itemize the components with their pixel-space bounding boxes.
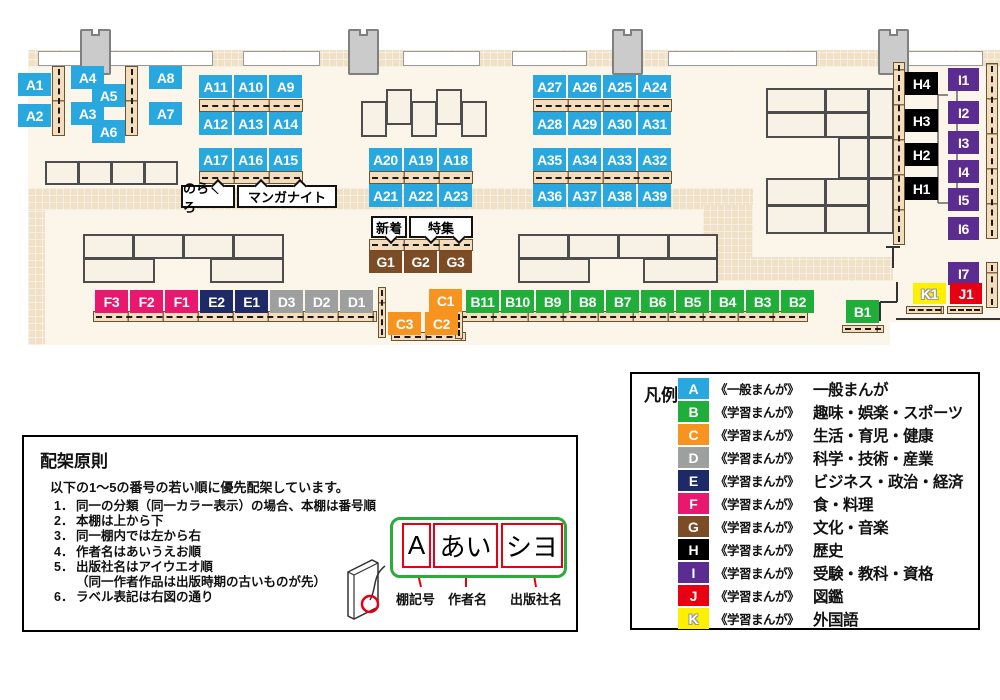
shelf-label-A7: A7	[149, 102, 182, 125]
shelf-label-F3: F3	[95, 290, 128, 313]
table-block	[766, 88, 826, 113]
shelf-strip	[125, 66, 138, 136]
legend-category: ビジネス・政治・経済	[813, 470, 963, 492]
legend-series: 《学習まんが》	[715, 448, 813, 467]
shelf-strip	[378, 287, 386, 338]
legend-series: 《一般まんが》	[715, 379, 813, 398]
table-block	[643, 258, 718, 283]
table-block	[825, 112, 869, 138]
shelf-strip	[52, 66, 65, 136]
table-block	[210, 258, 284, 283]
legend-item-C: C《学習まんが》生活・育児・健康	[678, 423, 974, 446]
legend-series: 《学習まんが》	[715, 609, 813, 628]
shelf-label-A2: A2	[18, 104, 51, 127]
shelf-strip	[842, 325, 884, 333]
shelf-label-C2: C2	[425, 312, 458, 335]
legend-item-I: I《学習まんが》受験・教科・資格	[678, 561, 974, 584]
right-walkway	[750, 257, 893, 281]
rule-item-4: 4．作者名はあいうえお順	[54, 545, 376, 560]
rules-intro: 以下の1～5の番号の若い順に優先配架しています。	[50, 477, 349, 496]
shelf-label-F1: F1	[165, 290, 198, 313]
shelf-label-B1: B1	[846, 300, 879, 323]
legend-item-D: D《学習まんが》科学・技術・産業	[678, 446, 974, 469]
shelf-label-B9: B9	[536, 290, 569, 313]
shelf-label-A24: A24	[638, 75, 671, 98]
wall-segment	[512, 51, 587, 66]
shelf-label-A17: A17	[199, 148, 232, 171]
legend-item-A: A《一般まんが》一般まんが	[678, 377, 974, 400]
bubble-new-arrivals: 新着	[371, 216, 407, 238]
shelf-label-A28: A28	[533, 112, 566, 135]
floor-cut	[890, 322, 1000, 345]
legend-box: 凡例 A《一般まんが》一般まんがB《学習まんが》趣味・娯楽・スポーツC《学習まん…	[630, 372, 980, 630]
rules-title: 配架原則	[40, 447, 108, 472]
shelf-label-A26: A26	[568, 75, 601, 98]
shelf-label-H1: H1	[905, 177, 938, 200]
shelf-label-A9: A9	[269, 75, 302, 98]
table-block	[133, 234, 184, 259]
label-publisher-cell: シヨ	[501, 523, 563, 568]
table-block	[144, 161, 178, 185]
shelf-label-A1: A1	[18, 73, 51, 96]
table-block	[766, 112, 826, 138]
table-block	[568, 234, 619, 259]
shelf-label-A12: A12	[199, 112, 232, 135]
table-block	[436, 89, 462, 125]
legend-series: 《学習まんが》	[715, 471, 813, 490]
legend-title: 凡例	[644, 381, 678, 406]
legend-series: 《学習まんが》	[715, 494, 813, 513]
shelf-label-K1: K1	[913, 283, 946, 304]
shelf-strip	[369, 171, 473, 184]
bubble-feature: 特集	[409, 216, 473, 238]
shelf-label-A31: A31	[638, 112, 671, 135]
shelf-label-C1: C1	[429, 289, 462, 312]
shelf-label-A19: A19	[404, 148, 437, 171]
legend-item-E: E《学習まんが》ビジネス・政治・経済	[678, 469, 974, 492]
legend-series: 《学習まんが》	[715, 517, 813, 536]
table-block	[668, 234, 718, 259]
shelf-label-D2: D2	[305, 290, 338, 313]
floor-map-page: A1A2A4A5A3A6A8A7A11A10A9A12A13A14A17A16A…	[0, 0, 1000, 700]
wall-segment	[668, 51, 817, 66]
table-block	[233, 234, 284, 259]
legend-chip-J: J	[678, 585, 709, 606]
table-block	[518, 234, 569, 259]
rule-item-6: 6．ラベル表記は右図の通り	[54, 590, 376, 605]
shelf-strip	[533, 99, 672, 112]
table-block	[183, 234, 234, 259]
rules-list: 1．同一の分類（同一カラー表示）の場合、本棚は番号順2．本棚は上から下3．同一棚…	[54, 499, 376, 605]
shelf-label-A32: A32	[638, 148, 671, 171]
table-block	[766, 205, 826, 234]
left-walkway	[28, 188, 45, 345]
shelf-strip	[986, 63, 998, 239]
shelf-label-A33: A33	[603, 148, 636, 171]
legend-chip-F: F	[678, 493, 709, 514]
shelf-label-C3: C3	[388, 312, 421, 335]
shelf-label-B6: B6	[641, 290, 674, 313]
shelf-label-B7: B7	[606, 290, 639, 313]
legend-category: 図鑑	[813, 585, 843, 607]
table-block	[825, 88, 869, 113]
shelf-strip	[947, 306, 983, 314]
legend-item-F: F《学習まんが》食・料理	[678, 492, 974, 515]
shelf-label-I1: I1	[948, 68, 979, 91]
shelf-label-A15: A15	[269, 148, 302, 171]
shelf-strip	[893, 62, 905, 245]
shelf-label-A36: A36	[533, 184, 566, 207]
shelf-label-J1: J1	[950, 283, 982, 304]
shelf-label-B8: B8	[571, 290, 604, 313]
legend-chip-D: D	[678, 447, 709, 468]
wall-segment	[243, 51, 320, 66]
shelf-label-B10: B10	[501, 290, 534, 313]
rule-item-3: 3．同一棚内では左から右	[54, 529, 376, 544]
shelf-label-A34: A34	[568, 148, 601, 171]
legend-item-K: K《学習まんが》外国語	[678, 607, 974, 630]
shelf-label-A8: A8	[149, 66, 182, 89]
legend-chip-I: I	[678, 562, 709, 583]
legend-category: 受験・教科・資格	[813, 562, 933, 584]
shelf-strip	[199, 99, 303, 112]
shelf-label-I7: I7	[948, 262, 979, 285]
table-block	[111, 161, 145, 185]
shelf-strip	[533, 171, 672, 184]
table-block	[838, 137, 869, 179]
shelf-label-B3: B3	[746, 290, 779, 313]
pillar-notch	[91, 29, 100, 36]
shelf-label-I4: I4	[948, 160, 979, 183]
legend-item-G: G《学習まんが》文化・音楽	[678, 515, 974, 538]
shelf-label-G2: G2	[404, 250, 437, 273]
legend-category: 食・料理	[813, 493, 873, 515]
table-block	[411, 101, 437, 137]
shelf-label-A39: A39	[638, 184, 671, 207]
legend-chip-A: A	[678, 378, 709, 399]
legend-chip-K: K	[678, 608, 709, 629]
table-block	[868, 137, 894, 179]
table-block	[361, 101, 387, 137]
table-block	[78, 161, 112, 185]
shelf-label-G1: G1	[369, 250, 402, 273]
table-block	[83, 258, 155, 283]
shelf-label-D1: D1	[340, 290, 373, 313]
shelf-label-A11: A11	[199, 75, 232, 98]
legend-chip-E: E	[678, 470, 709, 491]
wall-segment	[38, 51, 213, 66]
table-block	[868, 88, 894, 138]
table-block	[618, 234, 669, 259]
shelf-label-A21: A21	[369, 184, 402, 207]
shelf-label-I5: I5	[948, 188, 979, 211]
shelf-label-A16: A16	[234, 148, 267, 171]
pillar	[612, 29, 643, 75]
table-block	[825, 205, 869, 234]
shelf-strip	[906, 306, 944, 314]
legend-chip-C: C	[678, 424, 709, 445]
shelf-label-A38: A38	[603, 184, 636, 207]
shelf-label-D3: D3	[270, 290, 303, 313]
legend-series: 《学習まんが》	[715, 402, 813, 421]
label-author-cell: あい	[433, 523, 498, 568]
legend-rows: A《一般まんが》一般まんがB《学習まんが》趣味・娯楽・スポーツC《学習まんが》生…	[678, 377, 974, 630]
shelf-strip	[986, 262, 998, 308]
shelf-label-H4: H4	[905, 72, 938, 95]
legend-category: 趣味・娯楽・スポーツ	[813, 401, 963, 423]
shelf-label-A13: A13	[234, 112, 267, 135]
shelf-label-H2: H2	[905, 143, 938, 166]
caption-shelf-code: 棚記号	[396, 589, 435, 608]
shelf-label-A37: A37	[568, 184, 601, 207]
shelf-label-A25: A25	[603, 75, 636, 98]
shelf-label-I3: I3	[948, 131, 979, 154]
rule-item-5-note: （同一作者作品は出版時期の古いものが先）	[54, 575, 376, 590]
legend-item-H: H《学習まんが》歴史	[678, 538, 974, 561]
table-block	[518, 258, 590, 283]
legend-chip-G: G	[678, 516, 709, 537]
shelf-label-H3: H3	[905, 109, 938, 132]
legend-series: 《学習まんが》	[715, 540, 813, 559]
wall-segment	[403, 51, 480, 66]
shelf-label-G3: G3	[439, 250, 472, 273]
pillar	[348, 29, 379, 75]
legend-item-J: J《学習まんが》図鑑	[678, 584, 974, 607]
shelf-label-A14: A14	[269, 112, 302, 135]
legend-series: 《学習まんが》	[715, 586, 813, 605]
caption-author: 作者名	[448, 589, 487, 608]
legend-series: 《学習まんが》	[715, 425, 813, 444]
pillar-notch	[359, 29, 368, 36]
shelf-label-B2: B2	[781, 290, 814, 313]
shelf-label-A6: A6	[92, 120, 125, 143]
shelf-label-A30: A30	[603, 112, 636, 135]
legend-category: 生活・育児・健康	[813, 424, 933, 446]
label-shelf-code-cell: A	[402, 523, 431, 568]
shelf-label-F2: F2	[130, 290, 163, 313]
legend-chip-B: B	[678, 401, 709, 422]
shelf-label-A18: A18	[439, 148, 472, 171]
rule-item-5: 5．出版社名はアイウエオ順	[54, 560, 376, 575]
legend-category: 文化・音楽	[813, 516, 888, 538]
shelf-label-A22: A22	[404, 184, 437, 207]
legend-category: 歴史	[813, 539, 843, 561]
table-block	[461, 101, 487, 137]
shelf-label-B5: B5	[676, 290, 709, 313]
table-block	[45, 161, 79, 185]
table-block	[386, 89, 412, 125]
table-block	[825, 178, 869, 206]
shelf-label-I2: I2	[948, 101, 979, 124]
table-block	[83, 234, 134, 259]
bubble-manga-night: マンガナイト	[237, 185, 337, 208]
rule-item-2: 2．本棚は上から下	[54, 514, 376, 529]
pillar-notch	[889, 29, 898, 36]
shelf-label-A27: A27	[533, 75, 566, 98]
table-block	[868, 178, 894, 234]
shelf-label-A35: A35	[533, 148, 566, 171]
rule-item-1: 1．同一の分類（同一カラー表示）の場合、本棚は番号順	[54, 499, 376, 514]
legend-category: 科学・技術・産業	[813, 447, 933, 469]
legend-category: 一般まんが	[813, 378, 888, 400]
shelf-label-I6: I6	[948, 217, 979, 240]
shelf-label-A10: A10	[234, 75, 267, 98]
legend-category: 外国語	[813, 608, 858, 630]
pillar-notch	[623, 29, 632, 36]
shelf-label-E1: E1	[235, 290, 268, 313]
shelf-label-A23: A23	[439, 184, 472, 207]
table-block	[766, 178, 826, 206]
shelf-label-E2: E2	[200, 290, 233, 313]
shelf-label-B4: B4	[711, 290, 744, 313]
legend-chip-H: H	[678, 539, 709, 560]
bubble-norakuro: のらくろ	[181, 185, 235, 208]
legend-item-B: B《学習まんが》趣味・娯楽・スポーツ	[678, 400, 974, 423]
bubble-norakuro-label: のらくろ	[183, 178, 233, 216]
caption-publisher: 出版社名	[510, 589, 562, 608]
wall-segment	[908, 51, 983, 66]
shelf-label-B11: B11	[466, 290, 499, 313]
shelf-label-A29: A29	[568, 112, 601, 135]
shelf-label-A20: A20	[369, 148, 402, 171]
legend-series: 《学習まんが》	[715, 563, 813, 582]
